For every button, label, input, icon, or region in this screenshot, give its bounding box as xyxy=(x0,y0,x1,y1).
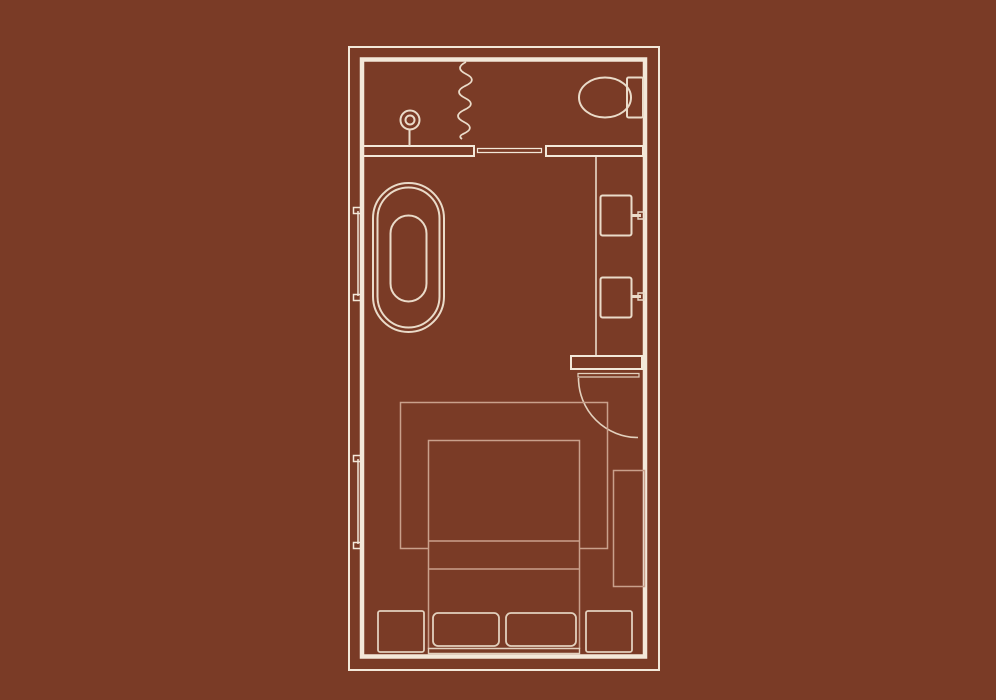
floor-plan-drawing xyxy=(0,0,996,700)
background xyxy=(0,0,996,700)
floor-plan-canvas xyxy=(0,0,996,700)
